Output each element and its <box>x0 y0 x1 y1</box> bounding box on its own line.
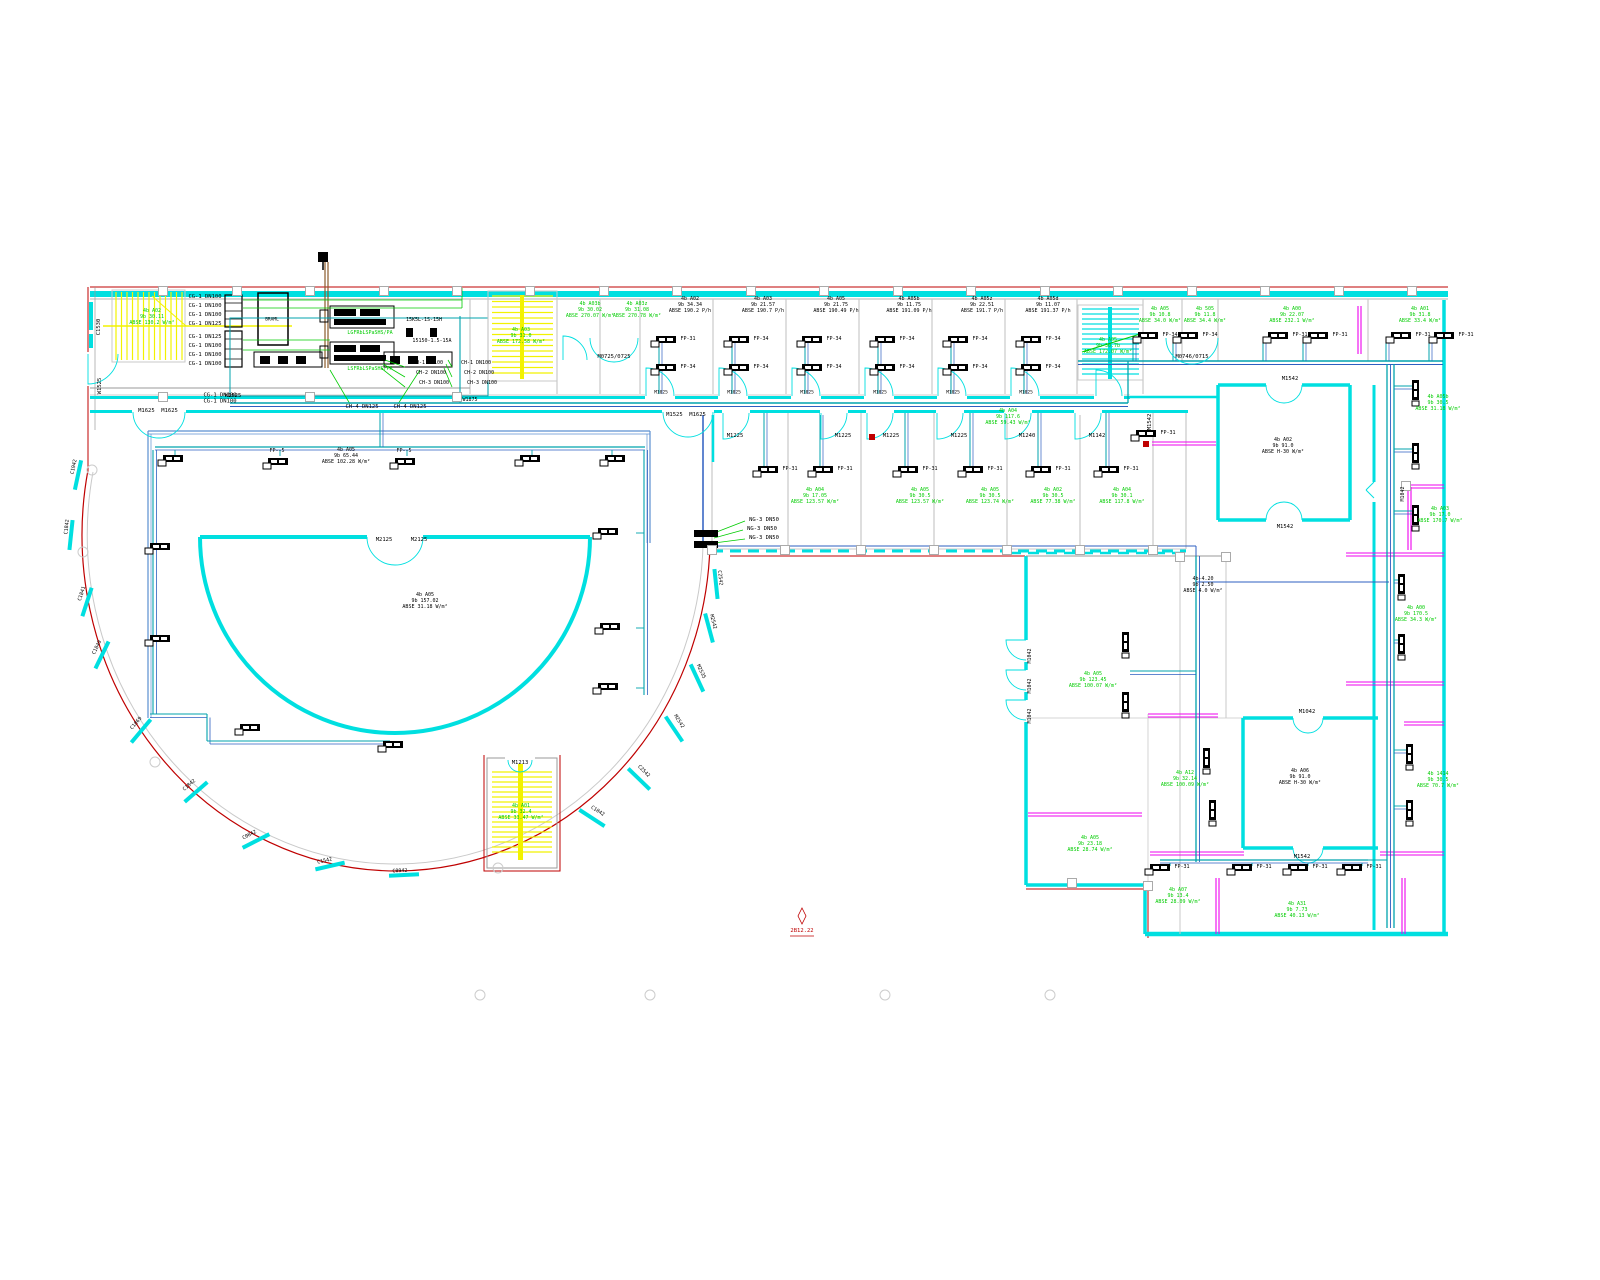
floor-plan-svg <box>0 0 1600 1280</box>
floor-plan-canvas[interactable]: C15304b A02 9b 30.11 ABSE 130.2 W/m²CG-1… <box>0 0 1600 1280</box>
